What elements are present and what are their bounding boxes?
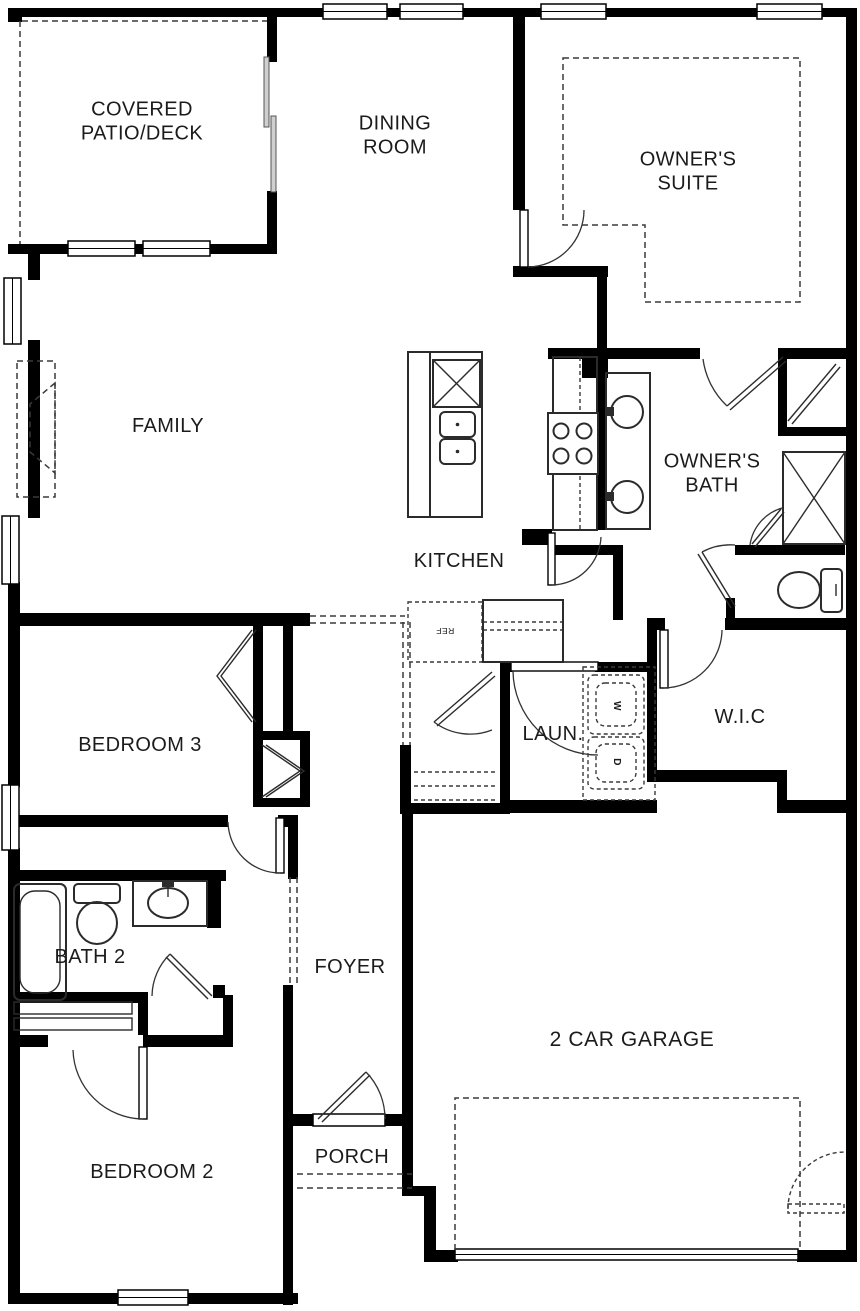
foyer-opening: [290, 877, 297, 985]
room-label-kitchen: KITCHEN: [414, 549, 505, 573]
shower-icon: [783, 452, 845, 544]
window-icon: [68, 241, 135, 256]
faucet-icon: [606, 492, 614, 501]
room-label-walk-in-closet: W.I.C: [715, 705, 766, 729]
bathtub-icon: [14, 884, 66, 1000]
range-icon: [548, 413, 598, 474]
toilet-icon: [74, 884, 120, 944]
kitchen-counters: [483, 357, 597, 662]
window-icon: [2, 516, 19, 584]
wic-door-icon: [660, 630, 722, 688]
room-label-covered-patio-deck: COVERED PATIO/DECK: [81, 98, 203, 147]
counter-dash-lines: [483, 622, 563, 630]
window-icon: [118, 1290, 188, 1305]
washer-dryer-area: [583, 667, 655, 800]
room-label-family: FAMILY: [132, 414, 204, 438]
sink-icon: [611, 396, 643, 428]
island-double-sink-icon: [440, 412, 475, 464]
room-label-dining-room: DINING ROOM: [359, 112, 431, 161]
toilet-icon: [778, 569, 842, 612]
linen-shelves: [14, 1002, 132, 1030]
room-label-bedroom-3: BEDROOM 3: [78, 733, 202, 757]
room-label-porch: PORCH: [315, 1145, 389, 1169]
sliding-glass-door-icon: [264, 57, 276, 192]
kitchen-island: [408, 352, 482, 517]
room-label-garage: 2 CAR GARAGE: [550, 1027, 715, 1053]
refrigerator-label: REF: [436, 626, 455, 636]
window-icon: [541, 4, 606, 19]
room-label-foyer: FOYER: [315, 955, 386, 979]
floor-plan: COVERED PATIO/DECK DINING ROOM OWNER'S S…: [0, 0, 860, 1311]
bedroom2-door-icon: [73, 1047, 147, 1119]
room-label-owners-bath: OWNER'S BATH: [664, 450, 761, 499]
sink-icon: [611, 481, 643, 513]
pantry-opening: [403, 622, 410, 745]
room-label-bedroom-2: BEDROOM 2: [90, 1160, 214, 1184]
window-icon: [400, 4, 463, 19]
faucet-icon: [606, 407, 614, 416]
owners-bath-double-vanity: [606, 373, 650, 529]
dryer-label: D: [610, 758, 622, 766]
washer-label: W: [610, 701, 622, 711]
pantry-door-icon: [434, 672, 495, 734]
owners-bath-door-icon: [703, 357, 786, 410]
walls: [8, 8, 857, 1305]
window-icon: [4, 278, 21, 344]
porch-steps-icon: [297, 1174, 412, 1188]
room-label-bath-2: BATH 2: [55, 945, 126, 969]
pantry-shelves: [414, 772, 497, 800]
window-icon: [323, 4, 387, 19]
owners-suite-door-icon: [520, 210, 584, 267]
bath2-door-icon: [152, 954, 212, 999]
room-label-laundry: LAUN.: [523, 722, 584, 746]
garage-service-door-icon: [788, 1152, 845, 1213]
window-icon: [143, 241, 210, 256]
floor-plan-geometry: [0, 0, 860, 1311]
window-icon: [757, 4, 822, 19]
kitchen-hall-door-icon: [548, 533, 601, 585]
linen-closet-door-icon: [788, 364, 840, 424]
room-label-owners-suite: OWNER'S SUITE: [640, 148, 737, 197]
window-icon: [2, 785, 19, 850]
faucet-icon: [162, 881, 174, 887]
shower-door-icon: [750, 508, 784, 547]
garage-pad-outline: [455, 1098, 800, 1250]
bedroom3-door-icon: [228, 818, 284, 873]
bath2-vanity: [133, 881, 207, 926]
kitchen-hall-opening: [310, 616, 405, 623]
garage-door-icon: [455, 1249, 798, 1260]
